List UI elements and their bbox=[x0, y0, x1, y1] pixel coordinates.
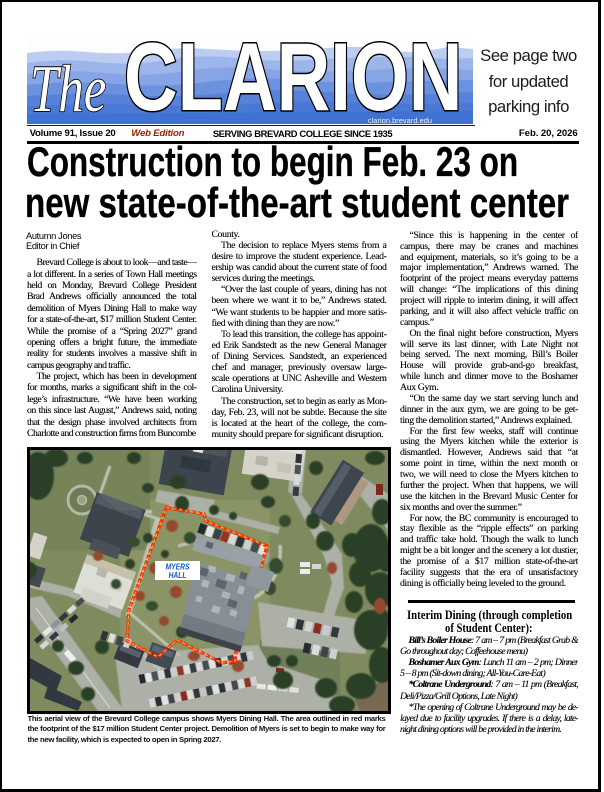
svg-text:CLARION: CLARION bbox=[124, 37, 462, 124]
svg-text:HALL: HALL bbox=[169, 570, 187, 580]
svg-text:The: The bbox=[30, 51, 106, 124]
